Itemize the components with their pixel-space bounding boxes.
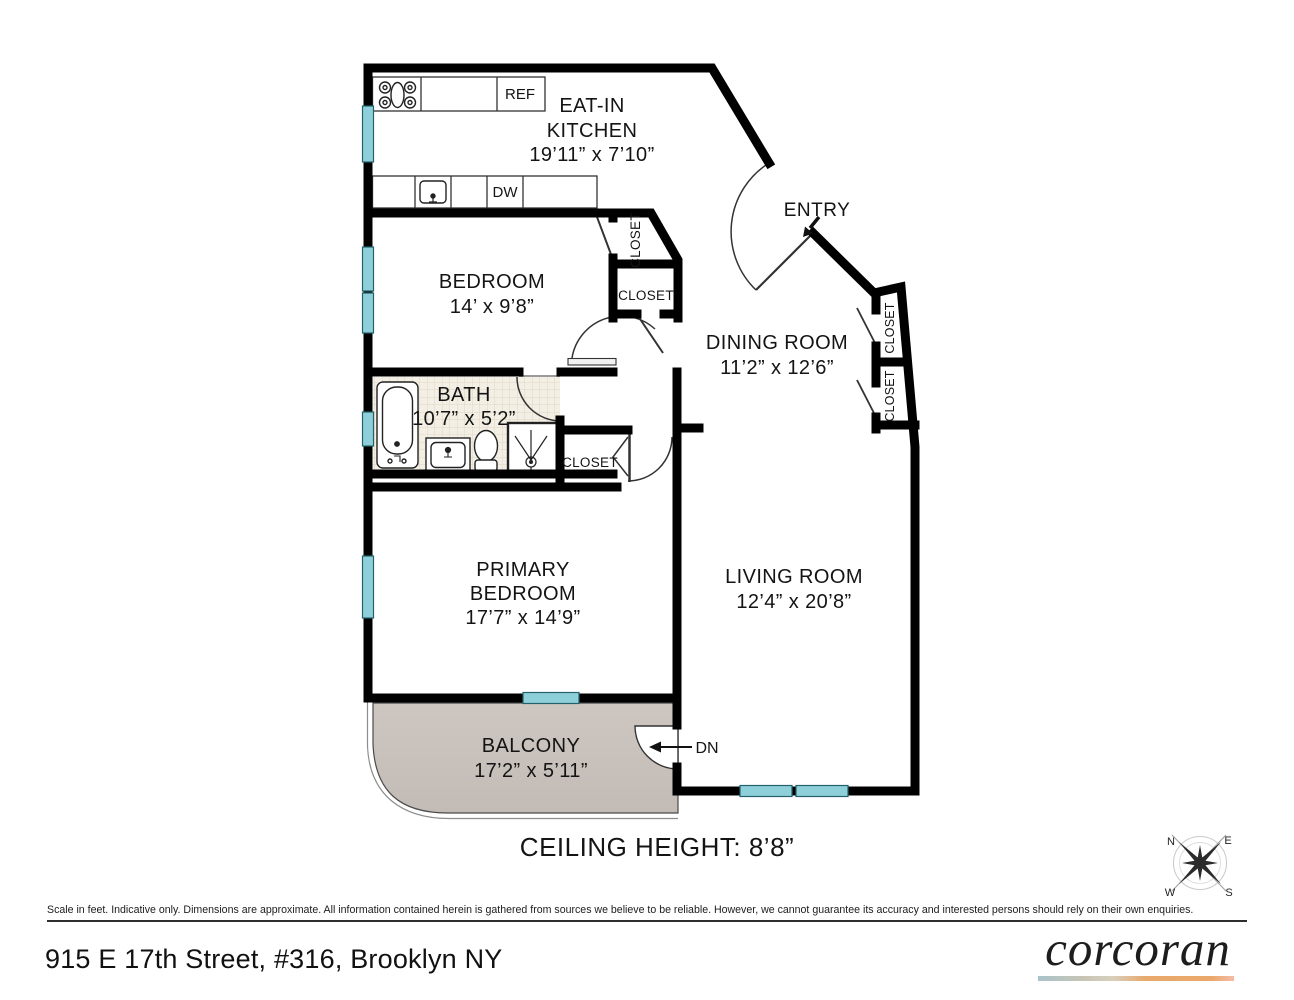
closet-label-dining-lower: CLOSET [883, 370, 897, 421]
svg-text:E: E [1224, 835, 1231, 847]
toilet-icon [475, 431, 498, 472]
svg-text:19’11” x 7’10”: 19’11” x 7’10” [529, 144, 654, 166]
dn-label: DN [695, 740, 718, 757]
entry-label: ENTRY [784, 200, 851, 221]
svg-text:10’7” x 5’2”: 10’7” x 5’2” [412, 408, 516, 430]
svg-text:BALCONY: BALCONY [482, 735, 580, 757]
svg-text:DINING ROOM: DINING ROOM [706, 332, 848, 354]
listing-address: 915 E 17th Street, #316, Brooklyn NY [45, 944, 502, 975]
corcoran-logo-text: corcoran [1038, 924, 1238, 973]
svg-text:S: S [1225, 887, 1232, 899]
svg-text:KITCHEN: KITCHEN [547, 120, 638, 142]
corcoran-logo-bar [1038, 976, 1234, 981]
room-label-dining: DINING ROOM 11’2” x 12’6” [706, 332, 848, 379]
dw-label: DW [493, 184, 519, 201]
ref-label: REF [505, 86, 535, 103]
closet-label-bedroom-upper: CLOSET [628, 212, 643, 268]
room-label-living: LIVING ROOM 12’4” x 20’8” [725, 566, 863, 613]
room-label-kitchen: EAT-IN KITCHEN 19’11” x 7’10” [529, 95, 654, 166]
closet-label-dining-upper: CLOSET [883, 302, 897, 353]
svg-text:14’ x 9’8”: 14’ x 9’8” [450, 296, 534, 318]
svg-text:17’7” x 14’9”: 17’7” x 14’9” [465, 607, 580, 629]
svg-text:BATH: BATH [437, 384, 490, 406]
svg-text:EAT-IN: EAT-IN [559, 95, 624, 117]
ceiling-height-note: CEILING HEIGHT: 8’8” [520, 832, 794, 862]
compass-icon: N E W S [1165, 835, 1233, 899]
svg-text:BEDROOM: BEDROOM [439, 271, 545, 293]
corcoran-logo: corcoran [1038, 924, 1238, 981]
svg-text:LIVING ROOM: LIVING ROOM [725, 566, 863, 588]
floorplan-page: EAT-IN KITCHEN 19’11” x 7’10” ENTRY BEDR… [0, 0, 1294, 1000]
svg-text:N: N [1167, 836, 1175, 848]
shower-icon [508, 423, 557, 472]
disclaimer-text: Scale in feet. Indicative only. Dimensio… [47, 904, 1251, 916]
svg-text:12’4” x 20’8”: 12’4” x 20’8” [736, 591, 851, 613]
closet-label-hall: CLOSET [562, 455, 618, 470]
svg-text:PRIMARY: PRIMARY [476, 559, 570, 581]
svg-text:17’2” x 5’11”: 17’2” x 5’11” [474, 760, 588, 782]
svg-text:BEDROOM: BEDROOM [470, 583, 576, 605]
closet-label-bedroom-lower: CLOSET [618, 288, 674, 303]
room-label-bedroom: BEDROOM 14’ x 9’8” [439, 271, 545, 318]
room-label-primary: PRIMARY BEDROOM 17’7” x 14’9” [465, 559, 580, 629]
kitchen-sink-icon [420, 181, 446, 203]
vanity-sink-icon [426, 438, 470, 472]
svg-text:W: W [1165, 887, 1176, 899]
svg-text:11’2” x 12’6”: 11’2” x 12’6” [720, 357, 834, 379]
floor-plan: EAT-IN KITCHEN 19’11” x 7’10” ENTRY BEDR… [0, 0, 1294, 1000]
